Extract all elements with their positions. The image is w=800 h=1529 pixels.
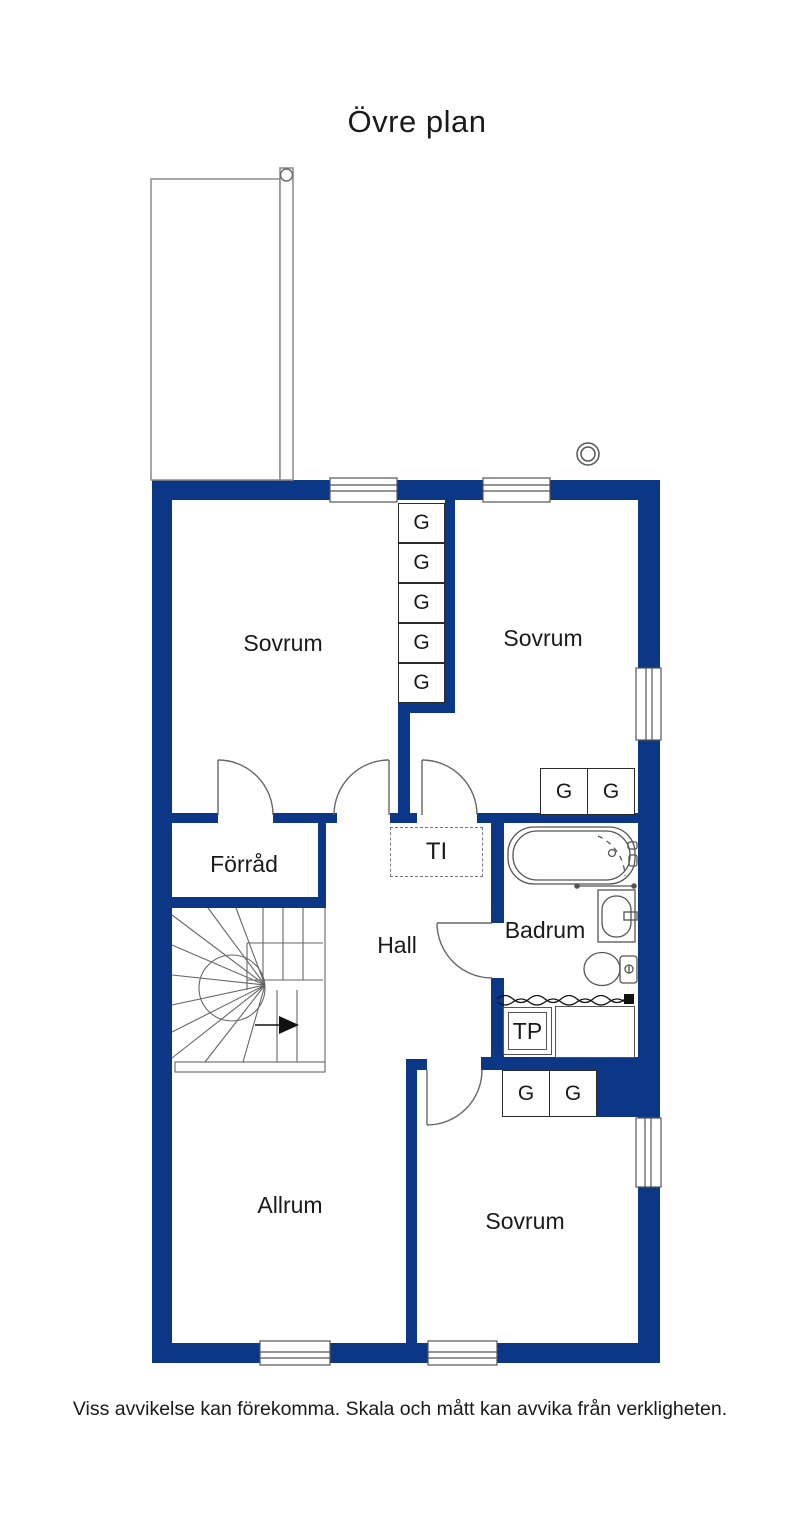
ti-label: TI <box>426 838 447 866</box>
bathroom-counter-box <box>555 1006 635 1058</box>
toilet <box>584 953 637 986</box>
wardrobe-label: G <box>413 671 429 695</box>
wardrobe-label: G <box>556 780 572 804</box>
bathtub <box>508 827 637 884</box>
door-storage <box>218 760 273 815</box>
wardrobe-box: G <box>398 663 445 703</box>
wardrobe-box: G <box>398 583 445 623</box>
window-right-upper <box>636 668 661 740</box>
wardrobe-label: G <box>413 591 429 615</box>
room-label-bathroom: Badrum <box>465 917 625 944</box>
room-label-bedroom-top-left: Sovrum <box>203 630 363 657</box>
tp-box: TP <box>503 1007 552 1055</box>
stairs <box>172 908 325 1072</box>
wardrobe-box: G <box>587 768 635 815</box>
floorplan-linework <box>0 0 800 1529</box>
wardrobe-box: G <box>540 768 588 815</box>
ti-box: TI <box>390 827 483 877</box>
shower-curtain-line <box>497 994 634 1005</box>
window-bottom-right <box>428 1341 497 1365</box>
tp-box-inner: TP <box>508 1012 547 1050</box>
door-bedroom-bottom <box>427 1070 482 1125</box>
wardrobe-box: G <box>549 1070 597 1117</box>
tp-label: TP <box>513 1018 542 1045</box>
window-top-left <box>330 478 397 502</box>
room-label-storage: Förråd <box>164 851 324 878</box>
wardrobe-box: G <box>502 1070 550 1117</box>
wardrobe-box: G <box>398 623 445 663</box>
room-label-hall: Hall <box>317 932 477 959</box>
window-right-lower <box>636 1118 661 1187</box>
balcony-outline <box>151 168 293 480</box>
wardrobe-label: G <box>413 511 429 535</box>
room-label-living-room: Allrum <box>210 1192 370 1219</box>
wardrobe-label: G <box>603 780 619 804</box>
wardrobe-label: G <box>518 1082 534 1106</box>
room-label-bedroom-top-right: Sovrum <box>463 625 623 652</box>
window-bottom-left <box>260 1341 330 1365</box>
disclaimer-text: Viss avvikelse kan förekomma. Skala och … <box>0 1398 800 1421</box>
wardrobe-box: G <box>398 503 445 543</box>
floorplan-page: Övre plan <box>0 0 800 1529</box>
wardrobe-label: G <box>413 551 429 575</box>
window-top-right <box>483 478 550 502</box>
room-label-bedroom-bottom: Sovrum <box>445 1208 605 1235</box>
door-bedroom-top-left <box>334 760 389 815</box>
wardrobe-label: G <box>413 631 429 655</box>
door-bedroom-top-right <box>422 760 477 815</box>
wardrobe-box: G <box>398 543 445 583</box>
wardrobe-label: G <box>565 1082 581 1106</box>
vent-circle-icon <box>577 443 599 465</box>
